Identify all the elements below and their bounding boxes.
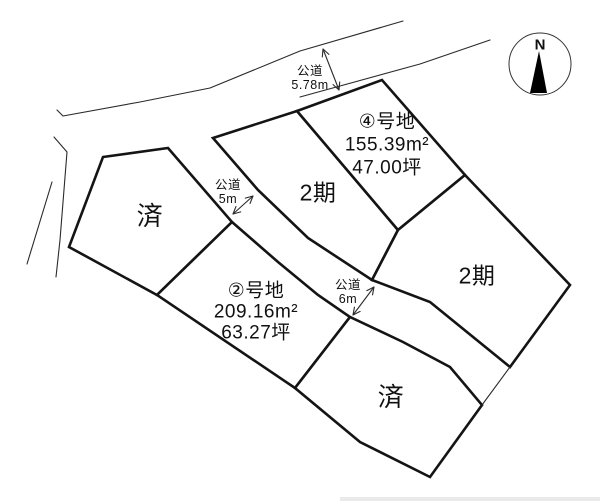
- lot-left-sold-label: 済: [137, 202, 164, 230]
- compass-north-label: N: [535, 37, 546, 54]
- lot-2-text-line: 63.27坪: [214, 323, 298, 344]
- road-public-6m-text-line: 6m: [335, 292, 361, 306]
- road-public-578-label: 公道5.78m: [291, 64, 328, 92]
- lot-4-label: ④号地155.39m²47.00坪: [345, 111, 429, 180]
- road-public-578-text-line: 5.78m: [291, 78, 328, 92]
- lot-4-text-line: ④号地: [345, 111, 429, 134]
- lot-4-text-line: 47.00坪: [345, 157, 429, 180]
- road-public-5m-text-line: 公道: [215, 178, 241, 192]
- lot-4-text-line: 155.39m²: [345, 134, 429, 157]
- left-road-west-edge: [27, 182, 52, 264]
- compass-needle-icon: [530, 51, 547, 93]
- lot-layout-map: 済2期④号地155.39m²47.00坪2期②号地209.16m²63.27坪済…: [0, 0, 600, 501]
- lot-left-sold-text-line: 済: [137, 202, 164, 230]
- road-public-5m-text-line: 5m: [215, 192, 241, 206]
- lot-right-phase2-text-line: 2期: [459, 264, 496, 289]
- road-public-6m-text-line: 公道: [335, 278, 361, 292]
- lot-right-phase2-label: 2期: [459, 264, 496, 289]
- lot-2-label: ②号地209.16m²63.27坪: [214, 281, 298, 344]
- lot-bottom-sold-label: 済: [378, 383, 405, 411]
- lot-2-text-line: ②号地: [214, 281, 298, 302]
- lot-2-text-line: 209.16m²: [214, 302, 298, 323]
- road-outlet-southeast: [482, 367, 510, 405]
- lot-middle-phase2-label: 2期: [300, 181, 337, 206]
- road-public-578-text-line: 公道: [291, 64, 328, 78]
- road-public-6m-label: 公道6m: [335, 278, 361, 306]
- lot-middle-phase2-text-line: 2期: [300, 181, 337, 206]
- lot-bottom-sold-text-line: 済: [378, 383, 405, 411]
- road-public-578-arrowhead: [339, 82, 340, 90]
- road-public-578-arrowhead: [322, 49, 323, 57]
- road-public-5m-label: 公道5m: [215, 178, 241, 206]
- bottom-artifact-strip: [340, 497, 600, 501]
- left-road-east-edge: [54, 137, 67, 277]
